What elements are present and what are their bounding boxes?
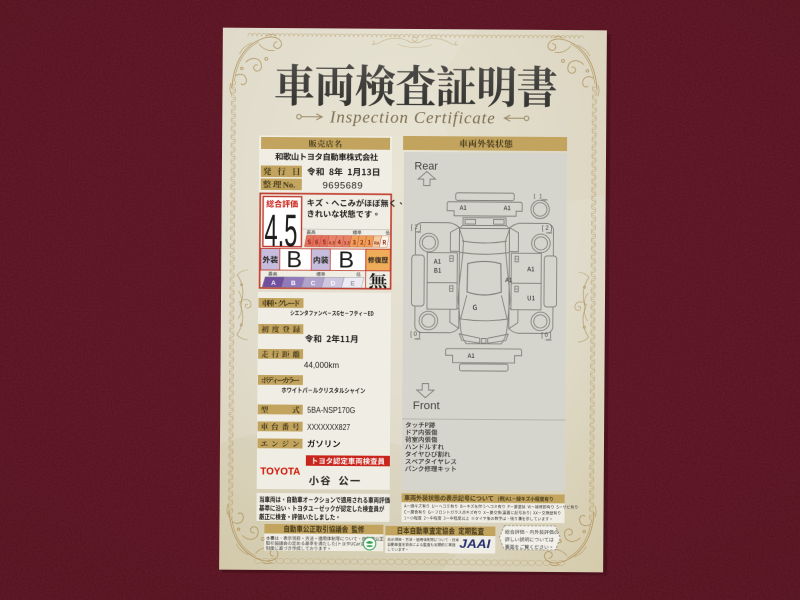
svg-text:[ ]: [ ] <box>534 194 542 200</box>
svg-text:Inspection Certificate: Inspection Certificate <box>329 107 496 127</box>
svg-text:B: B <box>338 246 354 272</box>
svg-text:A: A <box>271 280 276 287</box>
svg-text:E: E <box>351 281 356 288</box>
svg-text:TOYOTA: TOYOTA <box>260 465 300 477</box>
svg-text:B: B <box>286 246 302 272</box>
svg-text:Rear: Rear <box>414 161 438 173</box>
svg-text:XXXXXXX827: XXXXXXX827 <box>307 422 350 432</box>
svg-text:5BA-NSP170G: 5BA-NSP170G <box>307 405 355 415</box>
svg-text:9695689: 9695689 <box>323 180 364 191</box>
svg-text:B: B <box>291 280 296 287</box>
svg-text:D: D <box>331 281 336 288</box>
svg-text:C: C <box>311 280 316 287</box>
svg-text:mm: mm <box>546 231 552 235</box>
svg-text:mm: mm <box>415 337 421 341</box>
svg-text:44,000km: 44,000km <box>304 361 340 370</box>
svg-text:Front: Front <box>413 400 440 412</box>
svg-text:mm: mm <box>542 198 548 202</box>
svg-text:mm: mm <box>415 230 421 234</box>
svg-text:No.: No. <box>283 180 296 190</box>
svg-text:mm: mm <box>546 338 552 342</box>
svg-text:JAAI: JAAI <box>459 537 491 551</box>
